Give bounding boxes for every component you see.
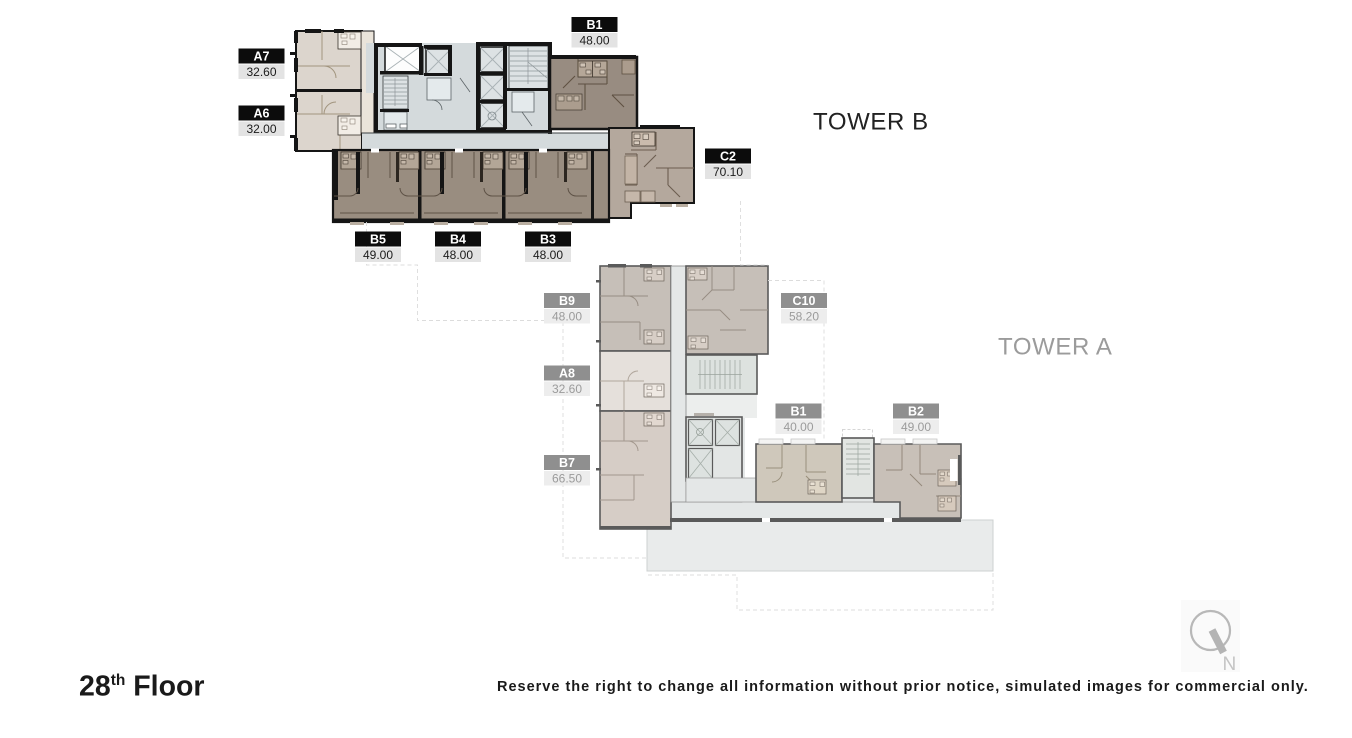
svg-text:A7: A7 [254, 49, 270, 63]
svg-text:C10: C10 [793, 294, 816, 308]
svg-text:B4: B4 [450, 232, 466, 246]
svg-text:B1: B1 [791, 404, 807, 418]
svg-text:B1: B1 [587, 18, 603, 32]
svg-text:B2: B2 [908, 404, 924, 418]
svg-text:N: N [1223, 654, 1237, 675]
svg-text:32.00: 32.00 [246, 122, 276, 136]
svg-text:32.60: 32.60 [246, 65, 276, 79]
svg-text:48.00: 48.00 [533, 248, 563, 262]
svg-text:70.10: 70.10 [713, 165, 743, 179]
svg-text:58.20: 58.20 [789, 310, 819, 324]
svg-text:48.00: 48.00 [579, 34, 609, 48]
svg-text:28th Floor: 28th Floor [79, 671, 205, 703]
svg-text:48.00: 48.00 [443, 248, 473, 262]
svg-text:49.00: 49.00 [901, 420, 931, 434]
svg-text:B7: B7 [559, 456, 575, 470]
svg-text:C2: C2 [720, 149, 736, 163]
svg-text:48.00: 48.00 [552, 310, 582, 324]
svg-text:A8: A8 [559, 366, 575, 380]
svg-text:32.60: 32.60 [552, 382, 582, 396]
svg-text:TOWER A: TOWER A [998, 334, 1112, 361]
svg-text:TOWER B: TOWER B [813, 109, 929, 136]
svg-text:49.00: 49.00 [363, 248, 393, 262]
svg-text:40.00: 40.00 [783, 420, 813, 434]
svg-text:B9: B9 [559, 294, 575, 308]
svg-text:B5: B5 [370, 232, 386, 246]
svg-text:66.50: 66.50 [552, 472, 582, 486]
svg-text:Reserve the right to change al: Reserve the right to change all informat… [497, 679, 1309, 695]
svg-text:B3: B3 [540, 232, 556, 246]
svg-text:A6: A6 [254, 106, 270, 120]
